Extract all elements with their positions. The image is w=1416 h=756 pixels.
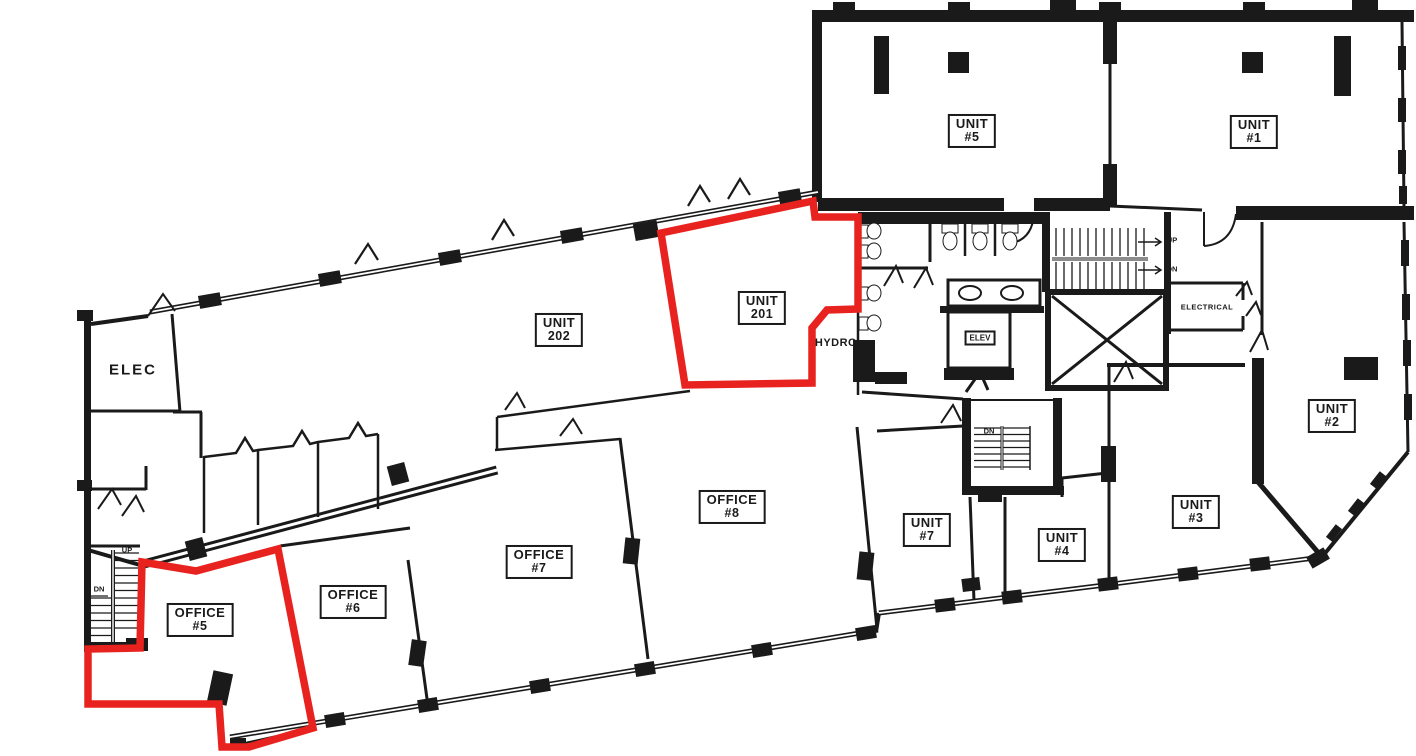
label-electrical: ELECTRICAL: [1181, 303, 1234, 312]
label-office-7: OFFICE#7: [506, 545, 573, 579]
door-swing: [941, 405, 961, 423]
label-elev: ELEV: [965, 331, 996, 346]
floorplan-image: UNIT#5 UNIT#1 UNIT202 UNIT201 UNIT#2 UNI…: [0, 0, 1416, 756]
label-unit-2: UNIT#2: [1308, 399, 1356, 433]
up-arrow: [1138, 238, 1161, 246]
door-swing: [1250, 330, 1268, 352]
door-swing: [98, 489, 144, 516]
unit2-unit3-walls: [1101, 222, 1412, 582]
label-unit-3: UNIT#3: [1172, 495, 1220, 529]
closets: [204, 423, 378, 533]
mid-stairs: [962, 398, 1064, 502]
elevator-shaft: [1048, 292, 1166, 388]
main-stairs: [1050, 228, 1166, 292]
label-hydro: HYDRO: [815, 337, 857, 349]
corridor-walls: [88, 391, 690, 565]
unit202-window-wall: [150, 179, 818, 312]
label-elec: ELEC: [109, 362, 157, 379]
door-swing: [355, 179, 750, 264]
label-unit-4: UNIT#4: [1038, 528, 1086, 562]
dn-arrow: [1138, 266, 1161, 274]
label-stair-dn-sw: DN: [94, 585, 105, 594]
label-office-8: OFFICE#8: [699, 490, 766, 524]
label-unit-202: UNIT202: [535, 313, 583, 347]
door-swing: [1236, 282, 1261, 316]
door-swing-arc: [1204, 212, 1236, 246]
bottom-window-walls: [207, 547, 1330, 748]
office-5-highlight-outline: [88, 549, 313, 747]
top-block-walls: [812, 0, 1414, 220]
label-office-5: OFFICE#5: [167, 603, 234, 637]
label-unit-5: UNIT#5: [948, 114, 996, 148]
label-unit-201: UNIT201: [738, 291, 786, 325]
label-stair-dn-main: DN: [1167, 265, 1178, 274]
label-stair-dn-mid: DN: [984, 427, 995, 436]
label-stair-up-main: UP: [1167, 236, 1177, 245]
label-unit-1: UNIT#1: [1230, 115, 1278, 149]
label-unit-7: UNIT#7: [903, 513, 951, 547]
floorplan-drawing: [0, 0, 1416, 756]
label-stair-up-sw: UP: [122, 546, 132, 555]
label-office-6: OFFICE#6: [320, 585, 387, 619]
